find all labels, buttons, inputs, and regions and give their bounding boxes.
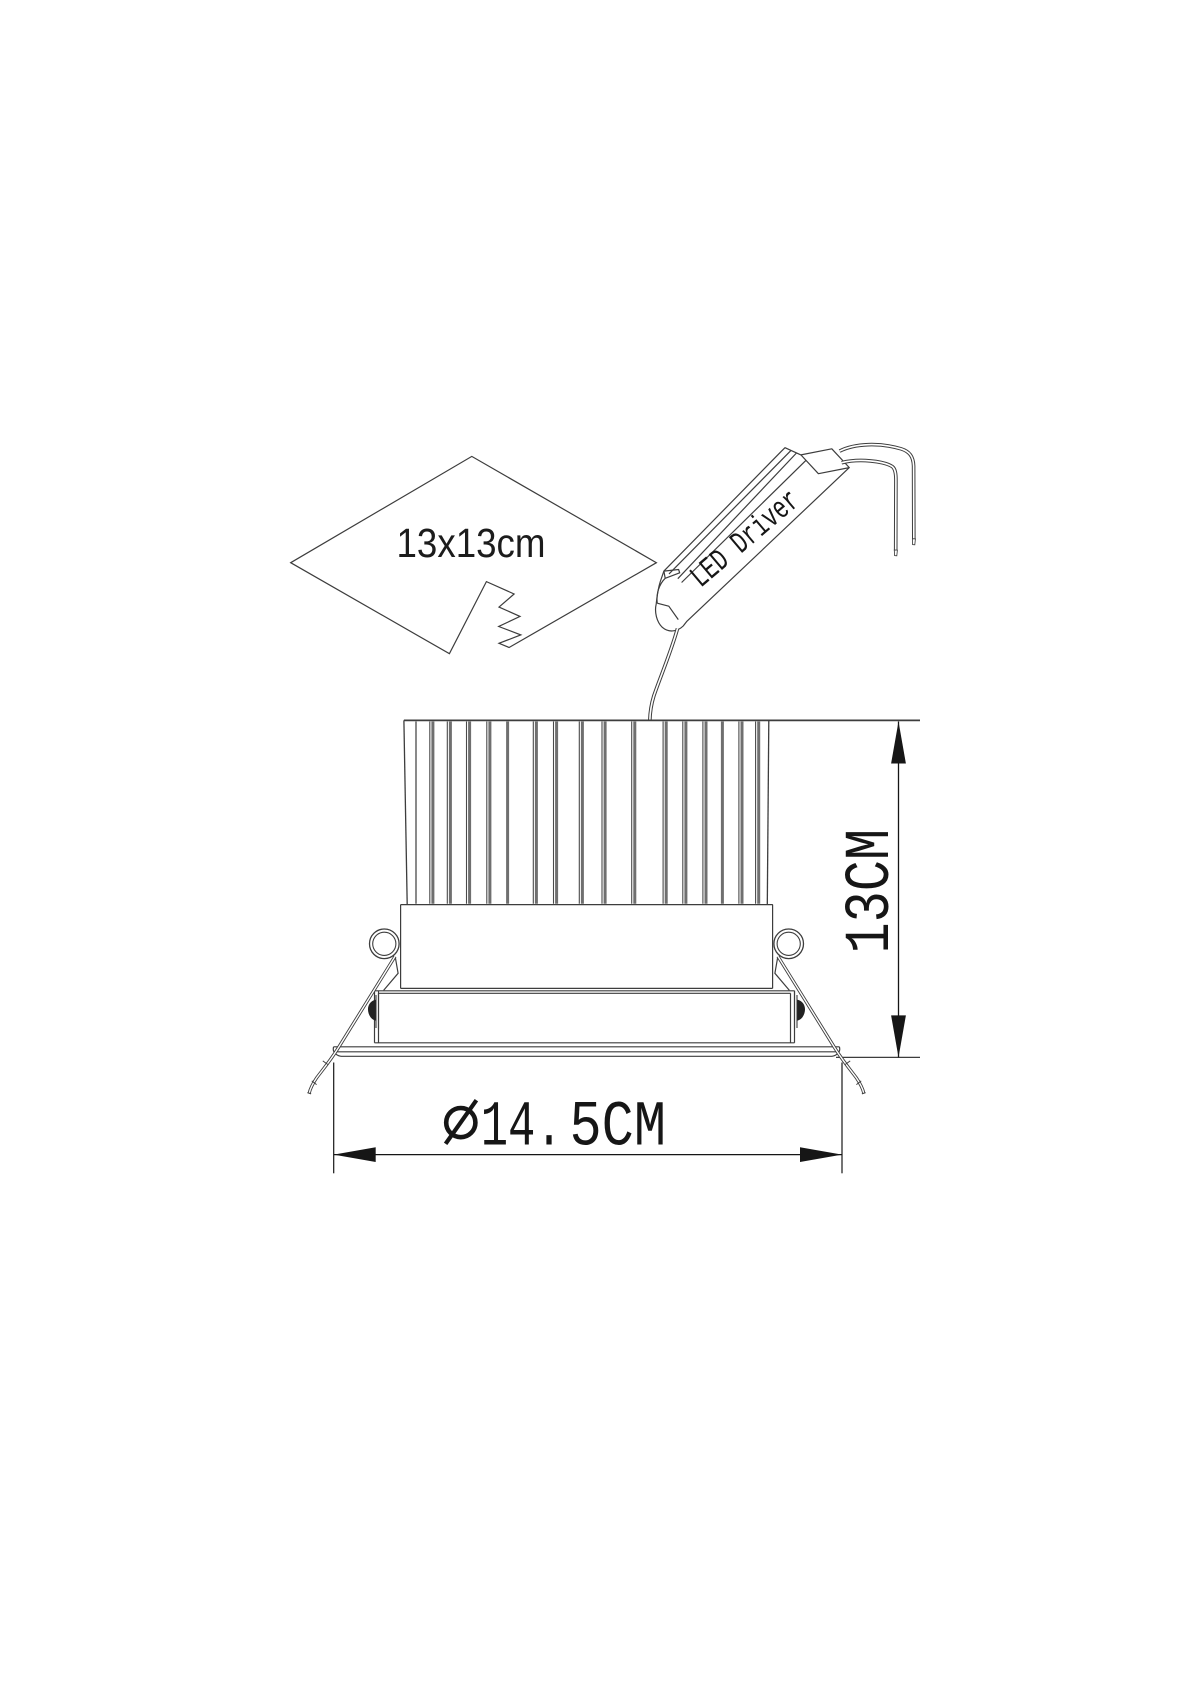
svg-text:14.: 14. [481, 1092, 563, 1164]
svg-text:13CM: 13CM [835, 829, 907, 954]
svg-text:5CM: 5CM [570, 1092, 667, 1164]
svg-text:13x13cm: 13x13cm [397, 520, 546, 566]
